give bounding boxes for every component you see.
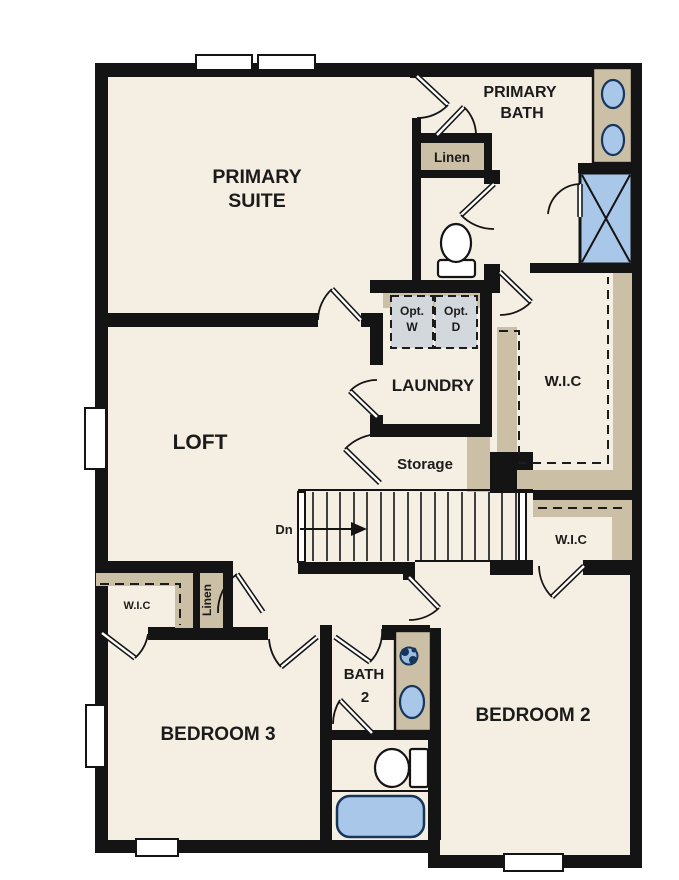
label-opt-dryer: Opt. (444, 304, 468, 318)
label-stairs-dn: Dn (275, 522, 292, 537)
label-primary-bath: BATH (500, 105, 543, 122)
shower-icon (580, 173, 632, 264)
label-opt-dryer: D (452, 320, 461, 334)
floor-plan: PRIMARY SUITE PRIMARY BATH Linen LOFT LA… (0, 0, 679, 880)
window (136, 839, 178, 856)
label-primary-suite: SUITE (228, 190, 285, 212)
window (86, 705, 105, 767)
sink-icon (602, 125, 624, 155)
label-bedroom2: BEDROOM 2 (475, 705, 590, 726)
label-opt-washer: W (406, 320, 418, 334)
window (504, 854, 563, 871)
window (258, 55, 315, 70)
label-laundry: LAUNDRY (392, 376, 475, 395)
bathtub-icon (337, 796, 424, 837)
sink-icon (602, 80, 624, 108)
window (196, 55, 252, 70)
label-linen-primary: Linen (434, 150, 470, 165)
label-primary-suite: PRIMARY (212, 166, 301, 188)
label-wic-bedroom2: W.I.C (555, 532, 587, 547)
sink-icon (400, 686, 424, 718)
label-bath2: BATH (344, 666, 385, 683)
label-storage: Storage (397, 456, 453, 473)
stair-landing-edge (519, 492, 526, 561)
label-linen-hall: Linen (200, 584, 214, 616)
label-loft: LOFT (173, 431, 228, 454)
label-opt-washer: Opt. (400, 304, 424, 318)
faucet-icon (401, 648, 418, 665)
floor-plan-canvas: PRIMARY SUITE PRIMARY BATH Linen LOFT LA… (0, 0, 679, 880)
toilet-icon (375, 749, 428, 787)
label-primary-bath: PRIMARY (483, 84, 557, 101)
label-bath2: 2 (361, 689, 369, 706)
label-wic-primary: W.I.C (545, 373, 582, 390)
label-bedroom3: BEDROOM 3 (160, 724, 275, 745)
window (85, 408, 106, 469)
label-wic-bedroom3: W.I.C (124, 600, 151, 612)
toilet-icon (438, 224, 475, 277)
stair-nosing (298, 492, 305, 562)
